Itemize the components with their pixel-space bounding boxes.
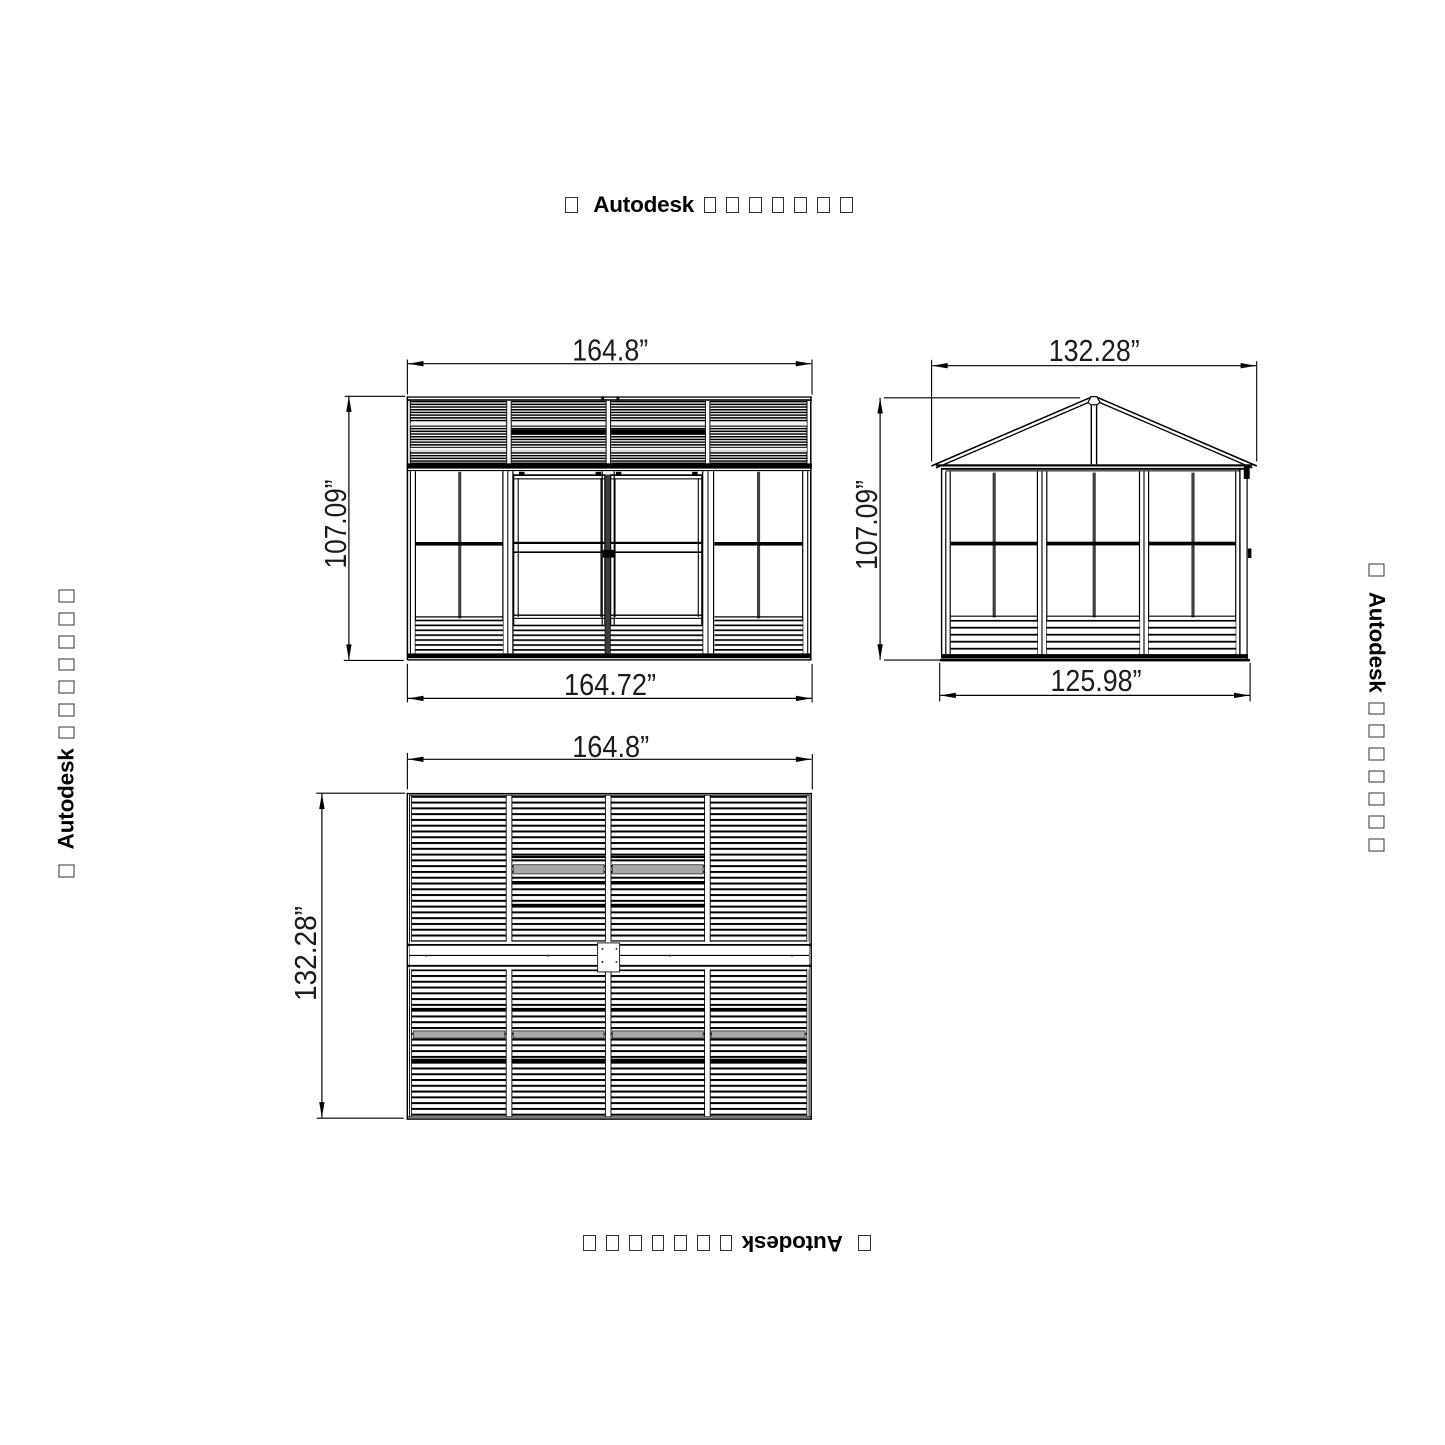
svg-text:125.98”: 125.98”: [1051, 663, 1142, 698]
svg-text:132.28”: 132.28”: [1049, 333, 1140, 368]
svg-text:107.09”: 107.09”: [318, 480, 353, 569]
svg-text:164.8”: 164.8”: [572, 729, 649, 764]
svg-text:107.09”: 107.09”: [849, 480, 884, 570]
svg-text:132.28”: 132.28”: [288, 906, 323, 1001]
svg-text:164.72”: 164.72”: [564, 667, 656, 702]
svg-text:164.8”: 164.8”: [572, 332, 648, 367]
